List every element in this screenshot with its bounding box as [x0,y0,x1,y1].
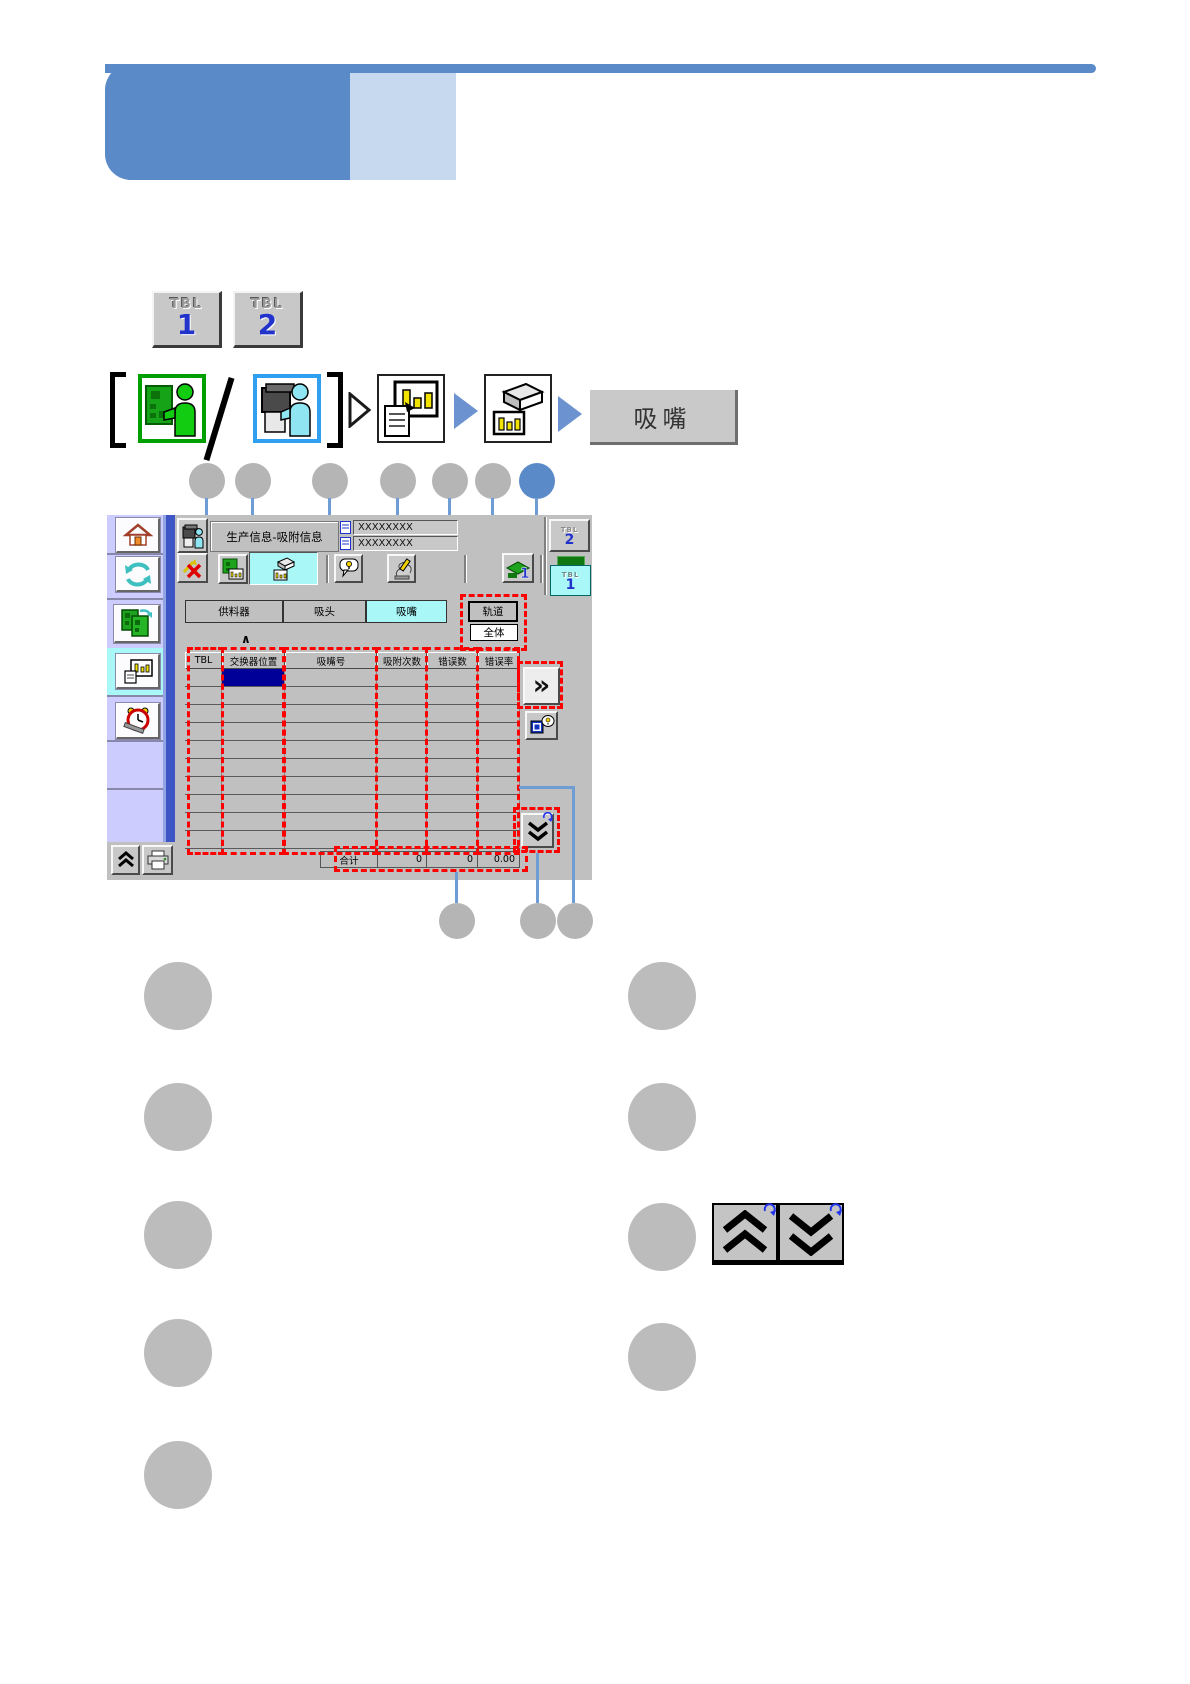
sidebar-separator [107,788,163,790]
table-cell[interactable] [377,669,427,686]
table-cell[interactable] [185,723,222,740]
report-chart-icon[interactable] [377,374,445,443]
pickup-table-header: TBL 交换器位置 吸嘴号 吸附次数 错误数 错误率 [185,652,520,669]
col-tbl[interactable]: TBL [185,652,222,669]
program-file-icon [340,521,351,534]
screen-select-button[interactable] [177,518,208,553]
table-cell[interactable] [377,759,427,776]
chevron-right-icon: » [533,671,550,701]
table-row[interactable] [185,759,520,777]
leader-line [455,872,458,903]
table-cell[interactable] [185,669,222,686]
selected-cell[interactable] [222,669,285,686]
step-circle-right-1 [628,962,696,1030]
program-name-2: XXXXXXXX [358,538,413,549]
solid-arrow-icon [557,395,583,433]
all-filter-button[interactable]: 全体 [470,624,518,641]
callout-8 [439,903,475,939]
table-cell[interactable] [285,795,377,812]
tab-nozzle-label: 吸嘴 [396,604,417,619]
table-cell[interactable] [377,795,427,812]
solid-arrow-icon [453,392,479,430]
toolbar-separator [326,555,329,583]
total-errors: 0 [427,851,478,868]
repeat-curl-icon [762,1201,778,1217]
table-cell[interactable] [222,759,285,776]
table-cell[interactable] [285,759,377,776]
toolbar-separator [544,517,547,595]
changeover-button[interactable] [116,557,160,592]
col-nozzle[interactable]: 吸嘴号 [285,652,377,669]
board-count-button[interactable]: 1 [502,553,534,583]
board-chart-icon [221,557,245,581]
table-row[interactable] [185,687,520,705]
pickup-table-body [185,669,520,849]
table-cell[interactable] [285,831,377,848]
tbl2-button-number: 2 [235,312,300,338]
home-icon [123,522,153,548]
program-name-1: XXXXXXXX [358,522,413,533]
table-cell[interactable] [285,813,377,830]
all-filter-label: 全体 [484,625,505,640]
help-detail-button[interactable] [525,711,558,740]
message-bubble-icon [338,557,360,580]
error-message-button[interactable] [334,554,363,583]
table-cell[interactable] [185,759,222,776]
total-label: 合计 [320,851,378,868]
tab-feeder-label: 供料器 [218,604,250,619]
slash-separator [204,377,235,461]
step-circle-right-4 [628,1323,696,1391]
table-cell[interactable] [427,705,478,722]
step-circle-left-2 [144,1083,212,1151]
table-row[interactable] [185,741,520,759]
callout-5 [432,463,468,499]
table-cell[interactable] [377,741,427,758]
print-button[interactable] [142,845,173,875]
tab-feeder[interactable]: 供料器 [185,600,283,623]
repeat-curl-icon [828,1201,844,1217]
table-cell[interactable] [478,705,520,722]
callout-6 [475,463,511,499]
tab-nozzle[interactable]: 吸嘴 [366,600,447,623]
screen-title-text: 生产信息-吸附信息 [226,529,322,545]
ui-tbl1-number: 1 [566,579,576,591]
table-cell[interactable] [427,777,478,794]
table-cell[interactable] [478,741,520,758]
table-cell[interactable] [285,687,377,704]
table-cell[interactable] [478,723,520,740]
table-cell[interactable] [478,831,520,848]
callout-9 [520,903,556,939]
table-cell[interactable] [222,687,285,704]
table-cell[interactable] [185,687,222,704]
table-cell[interactable] [377,705,427,722]
table-cell[interactable] [478,813,520,830]
table-cell[interactable] [377,687,427,704]
table-cell[interactable] [478,795,520,812]
table-cell[interactable] [185,831,222,848]
scroll-buttons-figure [712,1203,844,1265]
sort-caret-icon: ∧ [241,632,251,646]
ui-tbl2-button[interactable]: TBL 2 [549,519,590,552]
scroll-down-button[interactable] [521,813,554,848]
step-circle-left-4 [144,1319,212,1387]
table-cell[interactable] [427,831,478,848]
machine-person-icon [181,523,205,549]
figure-scroll-down-button[interactable] [778,1203,844,1265]
col-changer[interactable]: 交换器位置 [222,652,285,669]
board-number-icon: 1 [505,556,531,580]
track-filter-button[interactable]: 轨道 [468,601,518,622]
table-cell[interactable] [478,687,520,704]
component-info-toggle[interactable] [249,552,318,585]
table-cell[interactable] [478,777,520,794]
printer-icon [146,849,170,871]
program-file-icon [340,537,351,550]
callout-10 [557,903,593,939]
table-cell[interactable] [222,813,285,830]
leader-line [519,786,575,789]
table-cell[interactable] [478,759,520,776]
col-pickups[interactable]: 吸附次数 [377,652,427,669]
open-bracket [110,372,126,448]
table-row[interactable] [185,705,520,723]
component-chart-icon [271,555,297,582]
nozzle-flow-button-label: 吸嘴 [634,399,692,434]
svg-text:1: 1 [520,566,530,580]
tab-head-label: 吸头 [314,604,335,619]
table-cell[interactable] [285,723,377,740]
program-name-field-2[interactable]: XXXXXXXX [353,536,458,551]
table-cell[interactable] [185,705,222,722]
table-cell[interactable] [427,723,478,740]
pickup-table: TBL 交换器位置 吸嘴号 吸附次数 错误数 错误率 合计 0 0 0.00 [185,652,520,868]
total-pickups: 0 [378,851,427,868]
table-cell[interactable] [222,777,285,794]
table-cell[interactable] [427,741,478,758]
col-rate[interactable]: 错误率 [478,652,520,669]
table-row[interactable] [185,777,520,795]
table-cell[interactable] [285,741,377,758]
table-cell[interactable] [285,777,377,794]
step-circle-left-1 [144,962,212,1030]
table-cell[interactable] [285,669,377,686]
table-row[interactable] [185,831,520,849]
toolbar-separator [464,555,467,583]
header-banner-rule [105,64,1096,73]
ui-tbl1-button[interactable]: TBL 1 [550,565,591,596]
timer-setting-button[interactable] [116,703,160,739]
table-cell[interactable] [427,669,478,686]
ui-tbl2-number: 2 [565,534,575,546]
clear-graph-icon [181,556,205,580]
table-cell[interactable] [478,669,520,686]
table-cell[interactable] [377,777,427,794]
sidebar-separator [107,695,163,697]
table-cell[interactable] [427,759,478,776]
table-row[interactable] [185,723,520,741]
table-cell[interactable] [222,795,285,812]
figure-scroll-up-button[interactable] [712,1203,778,1265]
table-cell[interactable] [377,723,427,740]
page-up-button[interactable] [111,845,140,875]
header-banner-light [350,64,456,180]
table-cell[interactable] [185,813,222,830]
callout-7 [519,463,555,499]
total-row: 合计 0 0 0.00 [320,851,520,868]
step-circle-left-3 [144,1201,212,1269]
step-circle-left-5 [144,1441,212,1509]
table-row[interactable] [185,795,520,813]
toolbar-separator [540,555,543,583]
manual-page: TBL 1 TBL 2 [0,0,1190,1684]
table-cell[interactable] [222,705,285,722]
program-name-field-1[interactable]: XXXXXXXX [353,520,458,535]
step-circle-right-3 [628,1203,696,1271]
production-monitor-icon[interactable] [138,374,206,443]
table-cell[interactable] [185,741,222,758]
table-cell[interactable] [285,705,377,722]
tbl1-button-number: 1 [154,312,219,338]
home-button[interactable] [116,518,160,553]
clear-data-button[interactable] [177,553,208,583]
detail-bubble-icon [529,714,555,737]
nozzle-flow-button[interactable]: 吸嘴 [590,390,738,445]
production-info-button[interactable] [116,654,160,689]
sidebar-separator [107,740,163,742]
table-cell[interactable] [427,795,478,812]
machine-monitor-icon[interactable] [253,374,321,443]
repeat-curl-icon [542,811,554,823]
sidebar-divider-strip [163,515,175,842]
table-cell[interactable] [222,831,285,848]
stamp-pencil-icon [391,557,413,580]
col-errors[interactable]: 错误数 [427,652,478,669]
board-data-button[interactable] [114,605,160,643]
double-chevron-up-icon [116,850,136,870]
edit-log-button[interactable] [387,554,416,583]
sidebar-separator [107,553,163,555]
track-filter-label: 轨道 [483,604,504,619]
table-cell[interactable] [377,831,427,848]
table-cell[interactable] [185,795,222,812]
callout-3 [312,463,348,499]
cycle-arrows-icon [123,561,153,588]
board-info-button[interactable] [218,554,248,584]
leader-line [572,786,575,903]
alarm-wrench-icon [122,706,154,736]
callout-1 [189,463,225,499]
header-banner-dark [105,64,350,180]
table-row[interactable] [185,813,520,831]
table-cell[interactable] [377,813,427,830]
table-cell[interactable] [427,813,478,830]
chart-report-icon [122,658,154,685]
tab-head[interactable]: 吸头 [283,600,366,623]
leader-line [536,853,539,903]
component-chart-icon[interactable] [484,374,552,443]
callout-2 [235,463,271,499]
next-page-button[interactable]: » [523,667,560,705]
circuit-boards-icon [120,608,154,640]
step-circle-right-2 [628,1083,696,1151]
sidebar-separator [107,598,163,600]
machine-ui-screenshot: 生产信息-吸附信息 XXXXXXXX XXXXXXXX TBL 2 TBL 1 [107,515,592,880]
table-cell[interactable] [185,777,222,794]
screen-title: 生产信息-吸附信息 [210,521,339,552]
tbl1-button[interactable]: TBL 1 [152,291,222,348]
callout-4 [380,463,416,499]
total-rate: 0.00 [478,851,520,868]
tbl2-button[interactable]: TBL 2 [233,291,303,348]
table-cell[interactable] [222,741,285,758]
hollow-arrow-icon [348,392,372,428]
table-cell[interactable] [427,687,478,704]
table-row[interactable] [185,669,520,687]
close-bracket [327,372,343,448]
table-cell[interactable] [222,723,285,740]
